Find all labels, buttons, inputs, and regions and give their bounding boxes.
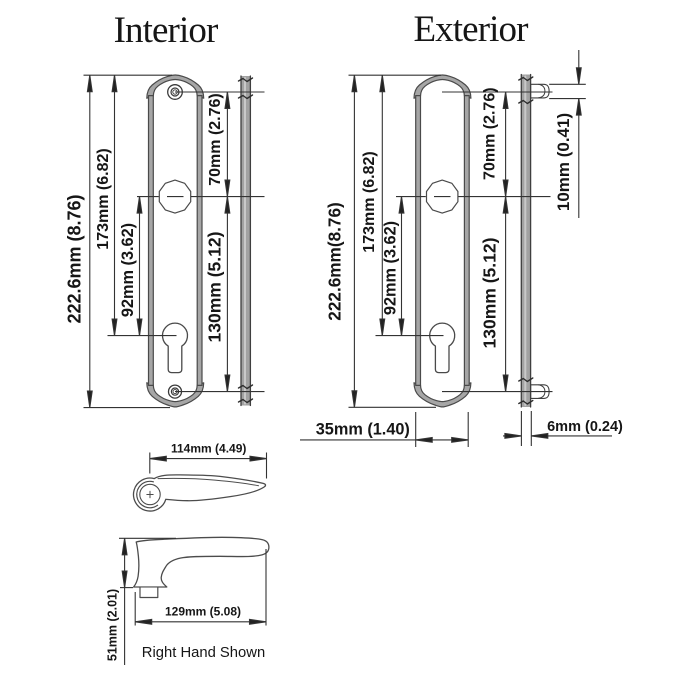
svg-text:129mm (5.08): 129mm (5.08) (165, 604, 241, 618)
svg-text:173mm (6.82): 173mm (6.82) (95, 148, 112, 249)
svg-text:Interior: Interior (114, 10, 218, 51)
svg-text:6mm (0.24): 6mm (0.24) (547, 419, 623, 435)
svg-text:Exterior: Exterior (413, 9, 528, 50)
svg-text:222.6mm (8.76): 222.6mm (8.76) (65, 194, 85, 323)
svg-text:51mm (2.01): 51mm (2.01) (106, 589, 120, 661)
svg-text:173mm (6.82): 173mm (6.82) (361, 151, 378, 252)
svg-text:92mm (3.62): 92mm (3.62) (119, 223, 137, 317)
svg-text:114mm (4.49): 114mm (4.49) (171, 441, 246, 455)
svg-text:222.6mm(8.76): 222.6mm(8.76) (325, 202, 345, 320)
svg-text:92mm (3.62): 92mm (3.62) (382, 221, 400, 315)
svg-text:130mm (5.12): 130mm (5.12) (480, 238, 500, 349)
svg-text:Right Hand Shown: Right Hand Shown (142, 645, 265, 661)
svg-text:10mm (0.41): 10mm (0.41) (554, 113, 573, 211)
svg-text:130mm (5.12): 130mm (5.12) (205, 232, 225, 343)
svg-text:70mm (2.76): 70mm (2.76) (207, 93, 224, 186)
svg-text:35mm (1.40): 35mm (1.40) (316, 421, 410, 439)
svg-text:70mm (2.76): 70mm (2.76) (482, 87, 499, 180)
